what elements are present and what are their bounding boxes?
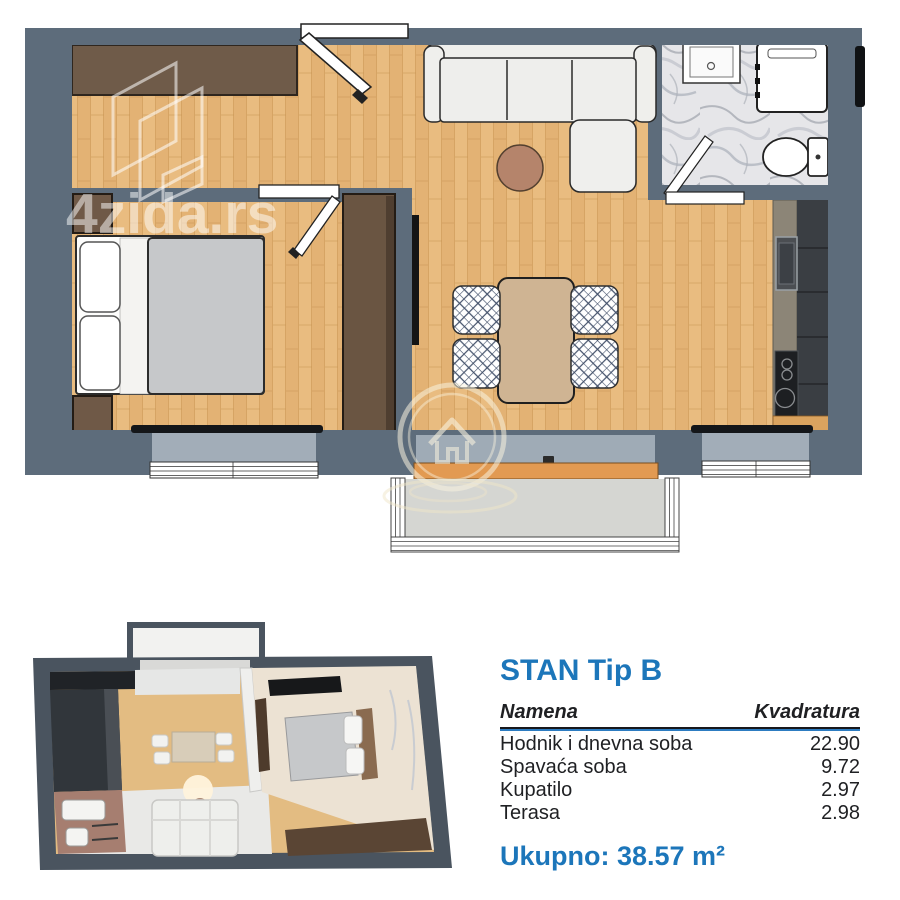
window-kitchen-glass [691,425,813,433]
table-row: Spavaća soba 9.72 [500,756,860,779]
bedroom-wardrobe [343,194,395,433]
pillow [80,242,120,312]
balcony-threshold [414,463,658,479]
info-panel: STAN Tip B Namena Kvadratura Hodnik i dn… [500,654,860,872]
window-bedroom-glass [131,425,323,433]
tv-panel [412,215,419,345]
kitchen [773,200,830,432]
room-area: 2.97 [821,779,860,802]
room-name: Spavaća soba [500,756,627,779]
toilet [763,138,828,176]
total-area: Ukupno: 38.57 m² [500,841,860,872]
window-bedroom [150,462,318,478]
floor-plan-3d [33,625,452,870]
room-area: 2.98 [821,802,860,825]
dining-chair [453,339,500,388]
table-header: Namena Kvadratura [500,701,860,729]
pillow [80,316,120,390]
table-row: Hodnik i dnevna soba 22.90 [500,733,860,756]
hallway-wardrobe [72,45,297,95]
bed [76,236,264,394]
floor-plan-2d: 4zida.rs [25,24,865,552]
terrace [391,456,679,552]
sofa-3d [152,800,238,856]
washing-machine [755,43,827,112]
room-name: Terasa [500,802,560,825]
header-area: Kvadratura [754,701,860,724]
table-row: Kupatilo 2.97 [500,779,860,802]
room-name: Kupatilo [500,779,572,802]
dining-table [498,278,574,403]
cooktop [775,351,798,418]
room-area: 9.72 [821,756,860,779]
room-name: Hodnik i dnevna soba [500,733,692,756]
dining-chair [571,339,618,388]
unit-title: STAN Tip B [500,654,860,688]
side-window-glass [855,46,865,107]
coffee-table [497,145,543,191]
nightstand-bottom [73,396,112,433]
dining-chair [571,286,618,334]
table-row: Terasa 2.98 [500,802,860,825]
window-sill [702,433,809,463]
floorplan-page: 4zida.rs [0,0,900,900]
room-area: 22.90 [810,733,860,756]
watermark-brand-text: 4zida.rs [66,182,278,246]
bathroom-3d [54,790,126,854]
window-sill [152,433,316,463]
area-table: Namena Kvadratura Hodnik i dnevna soba 2… [500,701,860,825]
header-name: Namena [500,701,578,724]
window-kitchen [702,461,810,477]
dining-chair [453,286,500,334]
